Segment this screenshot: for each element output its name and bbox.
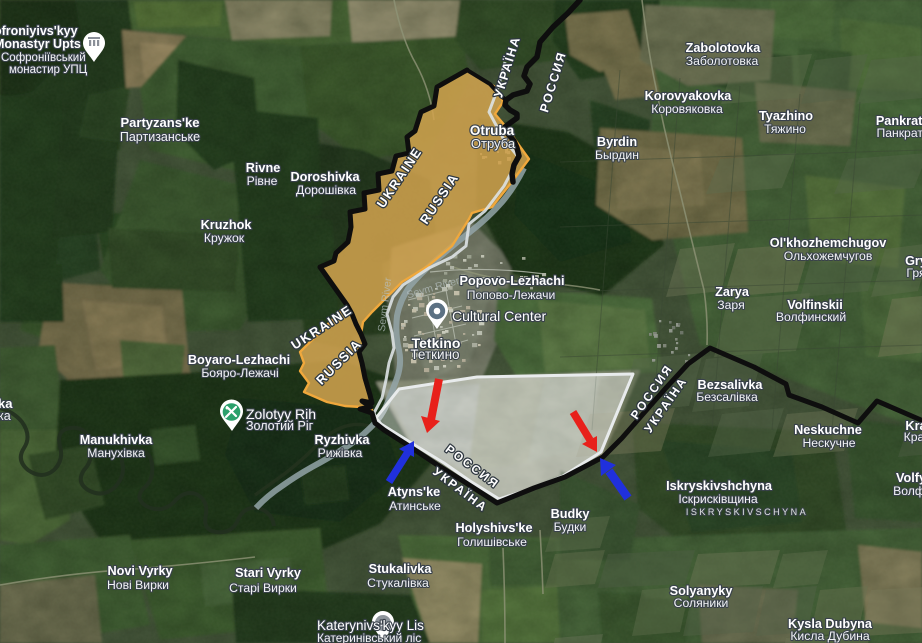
svg-text:Atyns'ke: Atyns'ke bbox=[388, 485, 440, 499]
svg-text:Коровяковка: Коровяковка bbox=[651, 102, 723, 116]
svg-text:Катеринівський ліс: Катеринівський ліс bbox=[317, 631, 421, 643]
svg-text:Zarya: Zarya bbox=[715, 285, 750, 299]
svg-text:Stukalivka: Stukalivka bbox=[369, 562, 433, 576]
svg-text:Нескучне: Нескучне bbox=[802, 436, 855, 450]
svg-text:Іскрисківщина: Іскрисківщина bbox=[678, 492, 758, 506]
svg-text:Рижівка: Рижівка bbox=[318, 446, 363, 460]
svg-text:Заря: Заря bbox=[717, 298, 744, 312]
svg-text:Kruzhok: Kruzhok bbox=[201, 218, 253, 232]
svg-text:Stari Vyrky: Stari Vyrky bbox=[235, 566, 301, 580]
svg-text:Манухівка: Манухівка bbox=[87, 446, 145, 460]
svg-text:Безсалівка: Безсалівка bbox=[696, 390, 758, 404]
svg-text:Панкрато: Панкрато bbox=[876, 126, 922, 140]
svg-text:Novi Vyrky: Novi Vyrky bbox=[107, 564, 172, 578]
svg-text:Tyazhino: Tyazhino bbox=[759, 109, 813, 123]
svg-text:Budky: Budky bbox=[551, 507, 590, 521]
svg-text:Бырдин: Бырдин bbox=[595, 148, 639, 162]
svg-text:Отруба: Отруба bbox=[471, 136, 516, 151]
svg-text:ка: ка bbox=[0, 409, 11, 423]
svg-text:Holyshivs'ke: Holyshivs'ke bbox=[455, 521, 532, 535]
svg-text:Волфинский: Волфинский bbox=[776, 310, 846, 324]
svg-text:Manukhivka: Manukhivka bbox=[80, 433, 154, 447]
svg-text:Голишівське: Голишівське bbox=[457, 535, 527, 549]
svg-text:Бояро-Лежачі: Бояро-Лежачі bbox=[201, 366, 278, 380]
svg-text:Popovo-Lezhachi: Popovo-Lezhachi bbox=[459, 274, 564, 288]
svg-text:Кисла Дубина: Кисла Дубина bbox=[790, 629, 870, 643]
svg-text:Ol'khozhemchugov: Ol'khozhemchugov bbox=[770, 236, 887, 250]
svg-text:Золотий Ріг: Золотий Ріг bbox=[246, 419, 314, 433]
svg-text:Тяжино: Тяжино bbox=[764, 122, 806, 136]
svg-text:Rivne: Rivne bbox=[246, 161, 281, 175]
svg-text:Заболотовка: Заболотовка bbox=[686, 54, 759, 68]
svg-text:Стукалівка: Стукалівка bbox=[367, 576, 429, 590]
svg-text:Neskuchne: Neskuchne bbox=[794, 423, 862, 437]
svg-text:Волф: Волф bbox=[893, 484, 922, 498]
svg-text:Рівне: Рівне bbox=[247, 174, 278, 188]
svg-text:Monastyr Upts: Monastyr Upts bbox=[0, 37, 81, 51]
svg-text:Iskryskivshchyna: Iskryskivshchyna bbox=[666, 479, 773, 493]
svg-text:ISKRYSKIVSCHYNA: ISKRYSKIVSCHYNA bbox=[686, 507, 808, 517]
svg-text:Кружок: Кружок bbox=[204, 231, 245, 245]
svg-text:Партизанське: Партизанське bbox=[120, 130, 200, 144]
svg-text:Ольхожемчугов: Ольхожемчугов bbox=[784, 249, 873, 263]
svg-text:Атинське: Атинське bbox=[389, 499, 441, 513]
svg-text:Doroshivka: Doroshivka bbox=[290, 170, 360, 184]
svg-text:Старі Вирки: Старі Вирки bbox=[229, 581, 297, 595]
svg-text:Теткино: Теткино bbox=[410, 347, 459, 362]
svg-text:монастир УПЦ: монастир УПЦ bbox=[9, 64, 88, 76]
svg-text:Partyzans'ke: Partyzans'ke bbox=[121, 115, 200, 130]
svg-text:Volfy: Volfy bbox=[896, 471, 922, 485]
svg-text:ofroniyivs'kyy: ofroniyivs'kyy bbox=[0, 24, 78, 38]
svg-text:Кра: Кра bbox=[904, 430, 922, 444]
svg-text:Korovyakovka: Korovyakovka bbox=[645, 89, 733, 103]
svg-text:Будки: Будки bbox=[554, 520, 587, 534]
svg-text:Byrdin: Byrdin bbox=[597, 135, 637, 149]
svg-text:Гря: Гря bbox=[906, 266, 922, 280]
svg-text:Попово-Лежачи: Попово-Лежачи bbox=[467, 288, 556, 302]
svg-text:Cultural Center: Cultural Center bbox=[452, 308, 546, 324]
svg-text:Zabolotovka: Zabolotovka bbox=[686, 41, 762, 55]
svg-text:Нові Вирки: Нові Вирки bbox=[107, 578, 169, 592]
svg-text:Соляники: Соляники bbox=[674, 596, 729, 610]
svg-text:Дорошівка: Дорошівка bbox=[296, 183, 356, 197]
svg-text:Ryzhivka: Ryzhivka bbox=[314, 433, 370, 447]
svg-text:Boyaro-Lezhachi: Boyaro-Lezhachi bbox=[188, 353, 290, 367]
svg-text:Софроніївський: Софроніївський bbox=[1, 52, 86, 64]
